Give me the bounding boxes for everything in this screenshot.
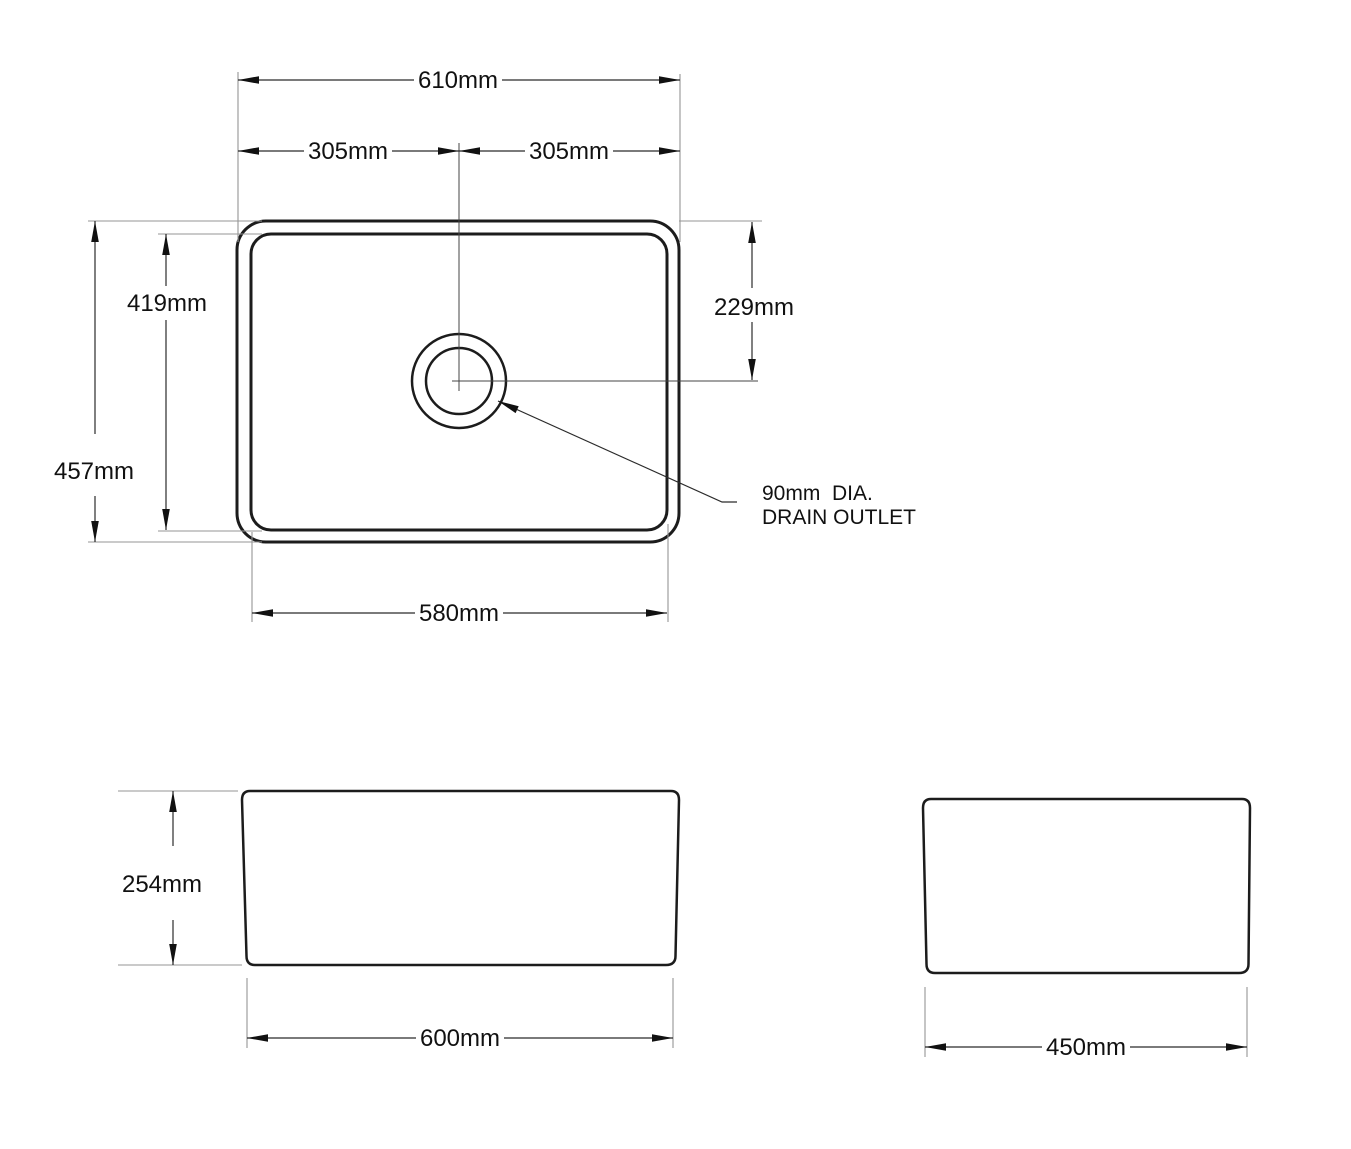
dimension-height: 254mm (122, 791, 202, 965)
arrowhead-right-icon (646, 609, 667, 617)
arrowhead-left-icon (238, 147, 259, 155)
arrowhead-down-icon (169, 944, 177, 965)
extension-lines (88, 72, 1247, 1057)
dimension-label: 610mm (418, 67, 498, 94)
dimension-drain-offset: 229mm (714, 222, 794, 380)
arrowhead-right-icon (652, 1034, 673, 1042)
arrowhead-up-icon (91, 221, 99, 242)
side-view (923, 799, 1250, 973)
sink-technical-drawing: 610mm 305mm 305mm 419mm 457mm (0, 0, 1351, 1149)
drawing-sheet: 610mm 305mm 305mm 419mm 457mm (0, 0, 1351, 1149)
arrowhead-down-icon (748, 359, 756, 380)
arrowhead-left-icon (252, 609, 273, 617)
drain-note-line2: DRAIN OUTLET (762, 506, 916, 529)
arrowhead-down-icon (162, 509, 170, 530)
dimension-label: 600mm (420, 1025, 500, 1052)
drain-callout: 90mm DIA. DRAIN OUTLET (498, 401, 916, 529)
dimension-label: 580mm (419, 600, 499, 627)
dimension-side-width: 450mm (925, 1034, 1247, 1061)
arrowhead-right-icon (659, 147, 680, 155)
arrowhead-left-icon (247, 1034, 268, 1042)
dimension-center-to-right: 305mm (459, 138, 680, 165)
front-view (242, 791, 679, 965)
arrowhead-right-icon (1226, 1043, 1247, 1051)
arrowhead-up-icon (748, 222, 756, 243)
arrowhead-left-icon (459, 147, 480, 155)
dimension-label: 229mm (714, 294, 794, 321)
dimension-label: 305mm (529, 138, 609, 165)
front-elevation-outline (242, 791, 679, 965)
dimension-bowl-width: 580mm (252, 600, 667, 627)
dimension-label: 457mm (54, 458, 134, 485)
dimension-bowl-length: 419mm (127, 234, 207, 530)
arrowhead-up-icon (162, 234, 170, 255)
arrowhead-right-icon (438, 147, 459, 155)
arrowhead-up-icon (169, 791, 177, 812)
dimension-center-to-left: 305mm (238, 138, 459, 165)
dimension-label: 450mm (1046, 1034, 1126, 1061)
leader-line (498, 401, 737, 502)
dimension-front-width: 600mm (247, 1025, 673, 1052)
dimension-overall-width: 610mm (238, 67, 680, 94)
arrowhead-down-icon (91, 521, 99, 542)
drain-note-line1: 90mm DIA. (762, 482, 873, 505)
leader-arrowhead-icon (498, 401, 519, 413)
arrowhead-left-icon (925, 1043, 946, 1051)
dimension-label: 419mm (127, 290, 207, 317)
dimension-label: 305mm (308, 138, 388, 165)
dimension-overall-length: 457mm (54, 221, 134, 542)
arrowhead-right-icon (659, 76, 680, 84)
arrowhead-left-icon (238, 76, 259, 84)
dimension-label: 254mm (122, 871, 202, 898)
side-elevation-outline (923, 799, 1250, 973)
